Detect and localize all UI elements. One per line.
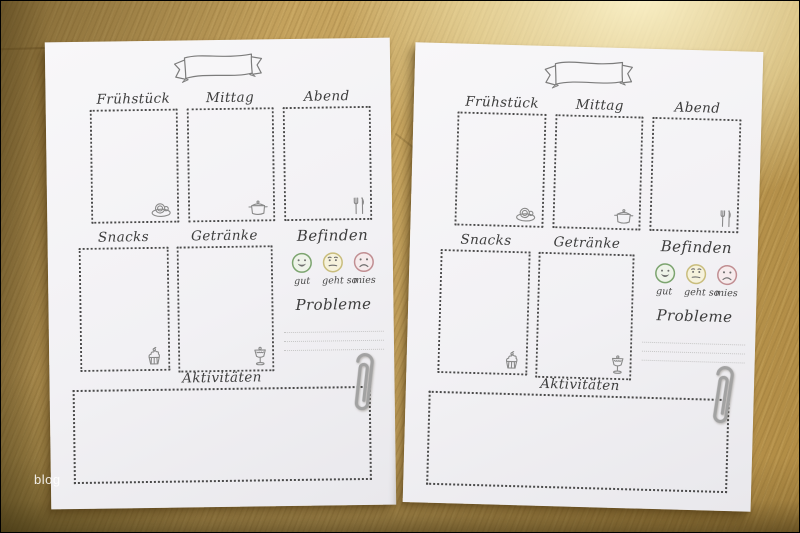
dinner-entry-box [650,117,742,233]
mood-label-bad: mies [353,275,375,286]
mood-label-soso: geht so [684,287,706,299]
lunch-entry-box [552,114,644,230]
sundae-glass-icon [252,346,268,366]
cooking-pot-icon [247,199,269,216]
breakfast-title: Frühstück [89,91,177,108]
breakfast-section: Frühstück [89,91,178,224]
sad-face-icon [353,251,375,273]
planner-sheet-right: Frühstück Mittag [403,42,764,512]
sad-face-icon [715,264,738,287]
wellbeing-title: Befinden [280,226,384,245]
problems-title: Probleme [641,306,748,327]
neutral-face-icon [322,251,344,273]
dinner-section: Abend [650,99,742,233]
snacks-section: Snacks [78,229,170,374]
drinks-entry-box [535,252,634,381]
drinks-title: Getränke [539,234,635,253]
coffee-cup-icon [149,201,173,218]
breakfast-section: Frühstück [454,93,546,227]
writing-line [642,352,745,364]
dinner-title: Abend [283,88,371,105]
drinks-title: Getränke [176,227,272,244]
breakfast-entry-box [454,111,546,227]
dinner-title: Abend [653,99,742,117]
ribbon-banner-icon [540,54,637,99]
meals-row: Frühstück Mittag [454,93,742,233]
happy-face-icon [653,262,676,285]
fork-and-knife-icon [352,196,366,215]
mood-label-bad: mies [715,288,737,300]
happy-face-icon [291,252,313,274]
wellbeing-title: Befinden [643,237,750,258]
breakfast-title: Frühstück [458,93,547,111]
lunch-section: Mittag [186,89,276,222]
paperclip [340,348,385,420]
watermark: blog [34,472,61,487]
drinks-section: Getränke [176,227,274,372]
mood-faces [642,262,750,287]
lunch-title: Mittag [555,96,644,114]
mood-label-soso: geht so [322,275,344,286]
mood-labels: gut geht so mies [641,286,748,300]
wellbeing-section: Befinden [280,226,386,371]
lunch-section: Mittag [552,96,644,230]
mood-faces [281,251,385,274]
activities-entry-box [426,391,730,493]
drinks-entry-box [177,245,275,372]
fork-and-knife-icon [718,209,733,228]
ribbon-banner-icon [169,47,266,90]
sundae-glass-icon [609,355,626,375]
mood-label-good: gut [291,276,313,287]
snacks-section: Snacks [437,231,531,377]
dinner-entry-box [283,106,372,221]
lunch-title: Mittag [186,89,274,106]
breakfast-entry-box [90,109,179,224]
lunch-entry-box [186,107,275,222]
photo-frame: Frühstück Mittag [0,0,800,533]
problems-title: Probleme [281,295,385,314]
meals-row: Frühstück Mittag [89,88,372,224]
drinks-section: Getränke [535,234,635,381]
cupcake-icon [144,347,164,366]
snacks-entry-box [79,247,171,372]
problems-lines [642,334,746,364]
snacks-title: Snacks [441,231,531,250]
cupcake-icon [501,351,522,371]
cooking-pot-icon [613,208,635,226]
dinner-section: Abend [283,88,372,221]
snacks-entry-box [437,249,530,375]
planner-sheet-left: Frühstück Mittag [45,38,396,510]
mood-labels: gut geht so mies [281,275,385,287]
mood-label-good: gut [653,286,675,298]
coffee-cup-icon [513,205,537,223]
snacks-title: Snacks [78,229,168,246]
activities-entry-box [73,386,372,484]
wellbeing-section: Befinden [639,237,750,384]
middle-row: Snacks Getränke [437,231,750,384]
middle-row: Snacks Getränke [78,226,386,374]
neutral-face-icon [684,263,707,286]
problems-lines [284,323,384,351]
